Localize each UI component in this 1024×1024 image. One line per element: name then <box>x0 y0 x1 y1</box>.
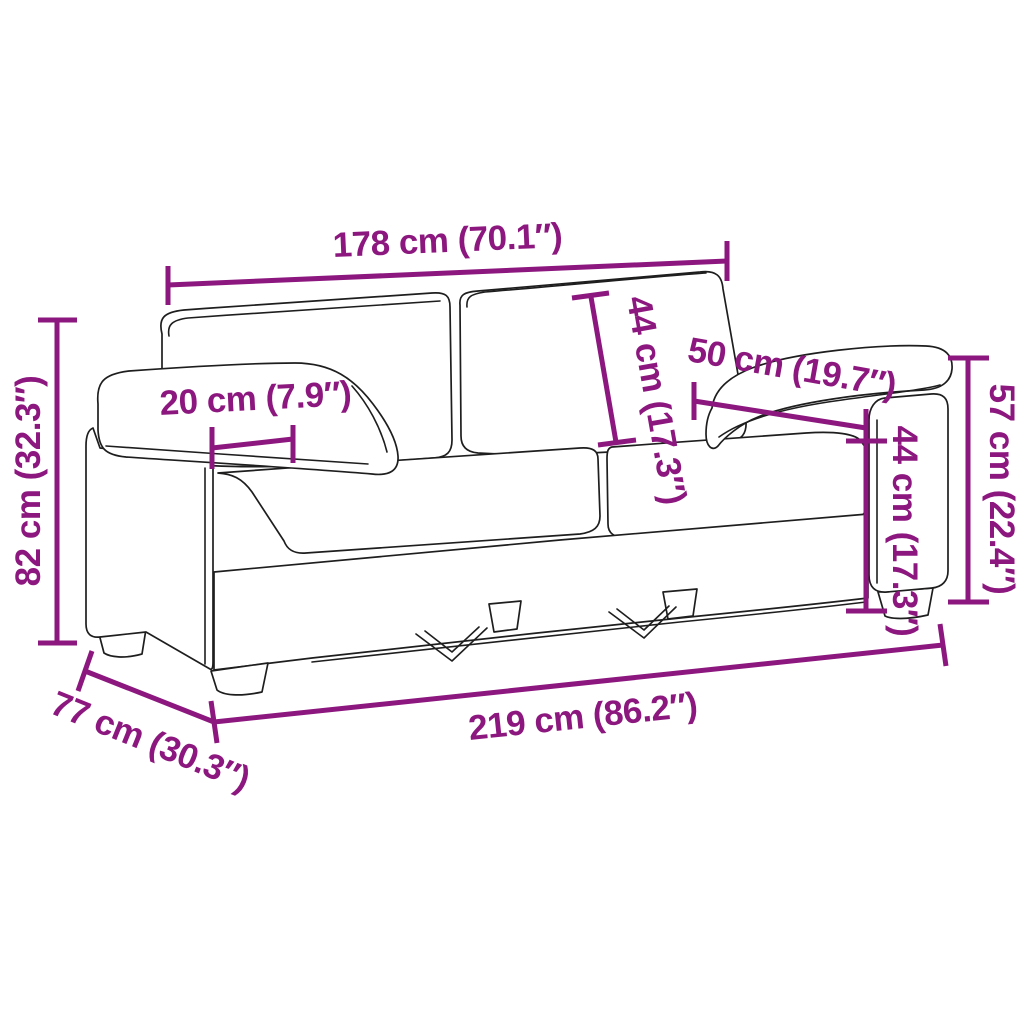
dimension-total-height: 82 cm (32.3″) <box>9 320 77 643</box>
dimension-label: 178 cm (70.1″) <box>332 216 563 265</box>
sofa-drawing <box>86 272 952 695</box>
sofa-leg-middle-left <box>489 601 521 632</box>
dimension-armrest-height: 57 cm (22.4″) <box>948 358 1021 602</box>
dimension-tick <box>940 624 946 666</box>
dimension-label: 77 cm (30.3″) <box>45 684 255 799</box>
diagram-canvas: 178 cm (70.1″) 82 cm (32.3″) 20 cm (7.9″… <box>0 0 1024 1024</box>
dimension-label: 57 cm (22.4″) <box>982 384 1021 595</box>
sofa-armrest-left-body <box>86 428 213 669</box>
sofa-dimension-diagram: 178 cm (70.1″) 82 cm (32.3″) 20 cm (7.9″… <box>0 0 1024 1024</box>
dimension-label: 82 cm (32.3″) <box>9 376 48 587</box>
dimension-label: 44 cm (17.3″) <box>885 426 924 637</box>
dimension-label: 219 cm (86.2″) <box>467 685 699 748</box>
